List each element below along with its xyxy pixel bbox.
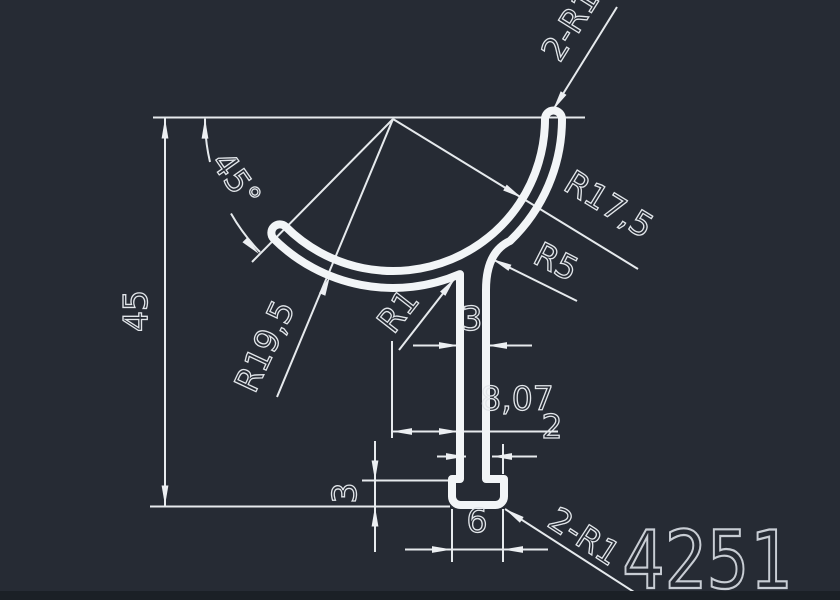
arrowhead [432,546,452,553]
arrowhead [392,428,412,435]
arrowhead [202,119,209,139]
dim-label-angle: 45° [204,144,270,214]
dim-label-top-end-rounds: 2-R1 [533,0,607,68]
cad-canvas[interactable]: 45 45° R17,5 R19,5 R1 R5 2-R1 3 8,07 2 3… [0,0,840,600]
dim-label-radius-outer: R19,5 [227,294,303,398]
arrowhead [162,486,169,506]
dim-label-bottom-corner-rounds: 2-R1 [541,499,627,574]
dim-label-foot-width: 6 [467,501,488,540]
part-number-text: 4251 [622,514,792,600]
dim-label-height: 45 [116,290,155,332]
dim-label-radius-inner: R17,5 [558,162,661,246]
bottom-edge-strip [0,591,840,600]
arrowhead [242,237,261,256]
arrowhead [162,119,169,139]
arrowhead [503,546,523,553]
dim-label-foot-overhang: 2 [542,407,563,446]
arrowhead [372,507,379,527]
dim-label-foot-height: 3 [325,483,364,504]
part-number: 4251 [622,514,792,600]
dim-label-stem-width: 3 [462,299,483,338]
drawing-viewport: 45 45° R17,5 R19,5 R1 R5 2-R1 3 8,07 2 3… [0,0,840,600]
angular-dim-arc-lower [231,214,260,253]
arrowhead [372,461,379,481]
